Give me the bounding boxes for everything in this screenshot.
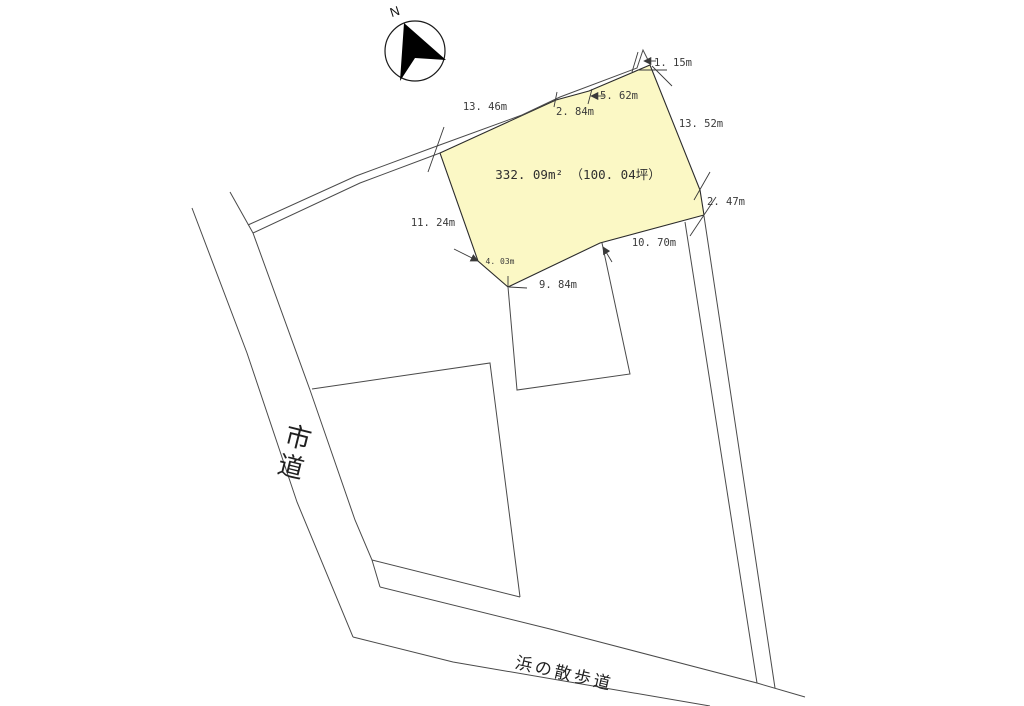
tick-topleft-corner <box>428 127 444 172</box>
measurement-5-62: 5. 62m <box>600 90 638 102</box>
middle-parcel-boundary <box>312 363 520 597</box>
middle-parcel-bottom-edge <box>372 560 520 597</box>
measurement-4-03: 4. 03m <box>486 257 515 266</box>
measurement-2-47: 2. 47m <box>707 196 745 208</box>
north-compass <box>385 21 446 81</box>
north-arrow-icon <box>400 23 446 81</box>
right-strip-left-edge <box>685 222 757 683</box>
survey-map: 13. 46m 2. 84m 5. 62m 1. 15m 13. 52m 2. … <box>0 0 1024 706</box>
right-strip-right-edge <box>704 216 775 688</box>
tick-9-84-horizontal <box>509 287 527 288</box>
measurement-13-46: 13. 46m <box>463 101 507 113</box>
parcel-area-label: 332. 09m² （100. 04坪） <box>495 167 660 182</box>
measurement-11-24: 11. 24m <box>411 217 455 229</box>
measurement-10-70: 10. 70m <box>632 237 676 249</box>
city-road-left-edge <box>192 208 353 637</box>
measurement-2-84: 2. 84m <box>556 106 594 118</box>
measurement-13-52: 13. 52m <box>679 118 723 130</box>
measurement-9-84: 9. 84m <box>539 279 577 291</box>
survey-drawing: 13. 46m 2. 84m 5. 62m 1. 15m 13. 52m 2. … <box>0 0 1024 706</box>
city-road-right-edge <box>230 192 380 587</box>
measurement-1-15: 1. 15m <box>654 57 692 69</box>
